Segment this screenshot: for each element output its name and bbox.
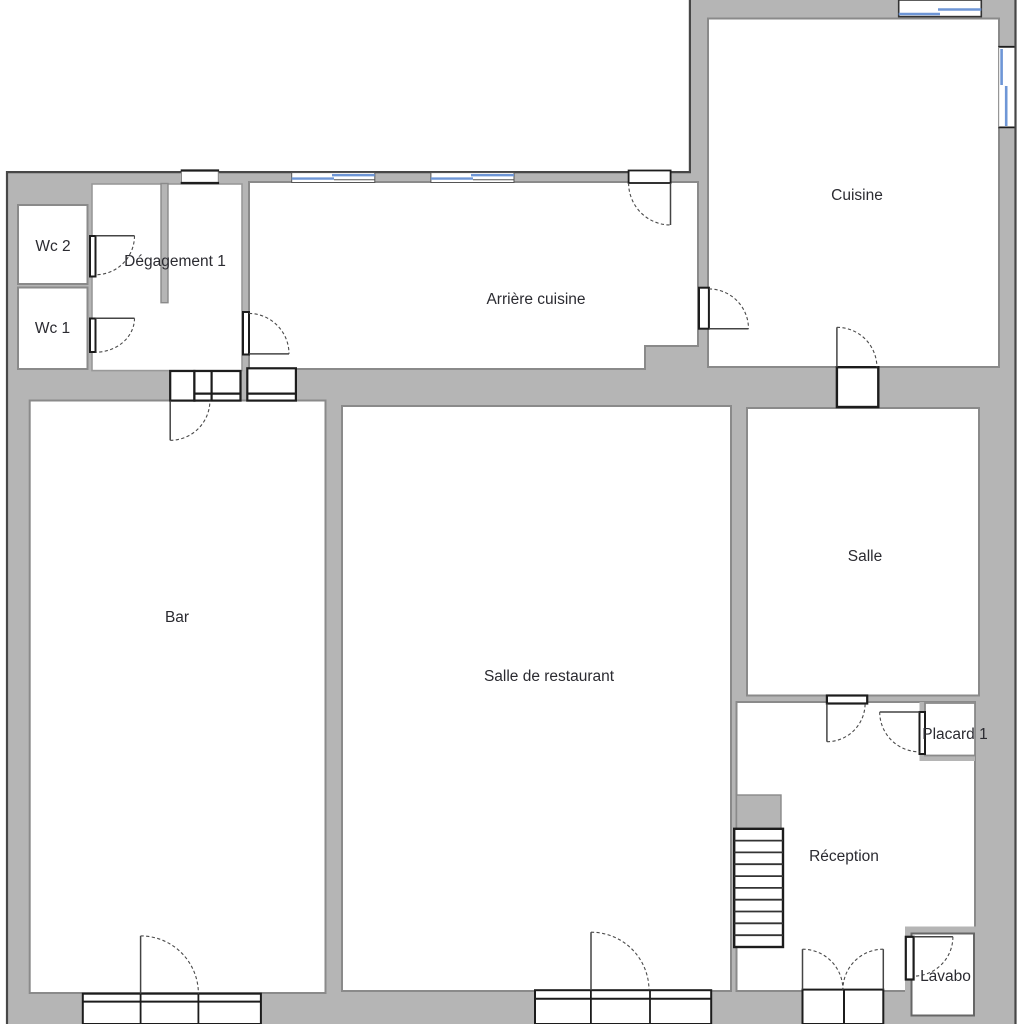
svg-text:Placard 1: Placard 1	[922, 726, 987, 743]
svg-text:Réception: Réception	[809, 848, 879, 865]
svg-text:Cuisine: Cuisine	[831, 187, 883, 204]
svg-text:Arrière cuisine: Arrière cuisine	[486, 291, 585, 308]
svg-text:Wc 1: Wc 1	[35, 320, 70, 337]
svg-text:Wc 2: Wc 2	[35, 238, 70, 255]
svg-text:Salle de restaurant: Salle de restaurant	[484, 668, 615, 685]
svg-text:Salle: Salle	[848, 548, 882, 565]
svg-text:Bar: Bar	[165, 609, 189, 626]
svg-text:Dégagement 1: Dégagement 1	[124, 253, 226, 270]
svg-text:Lavabo: Lavabo	[920, 968, 971, 985]
